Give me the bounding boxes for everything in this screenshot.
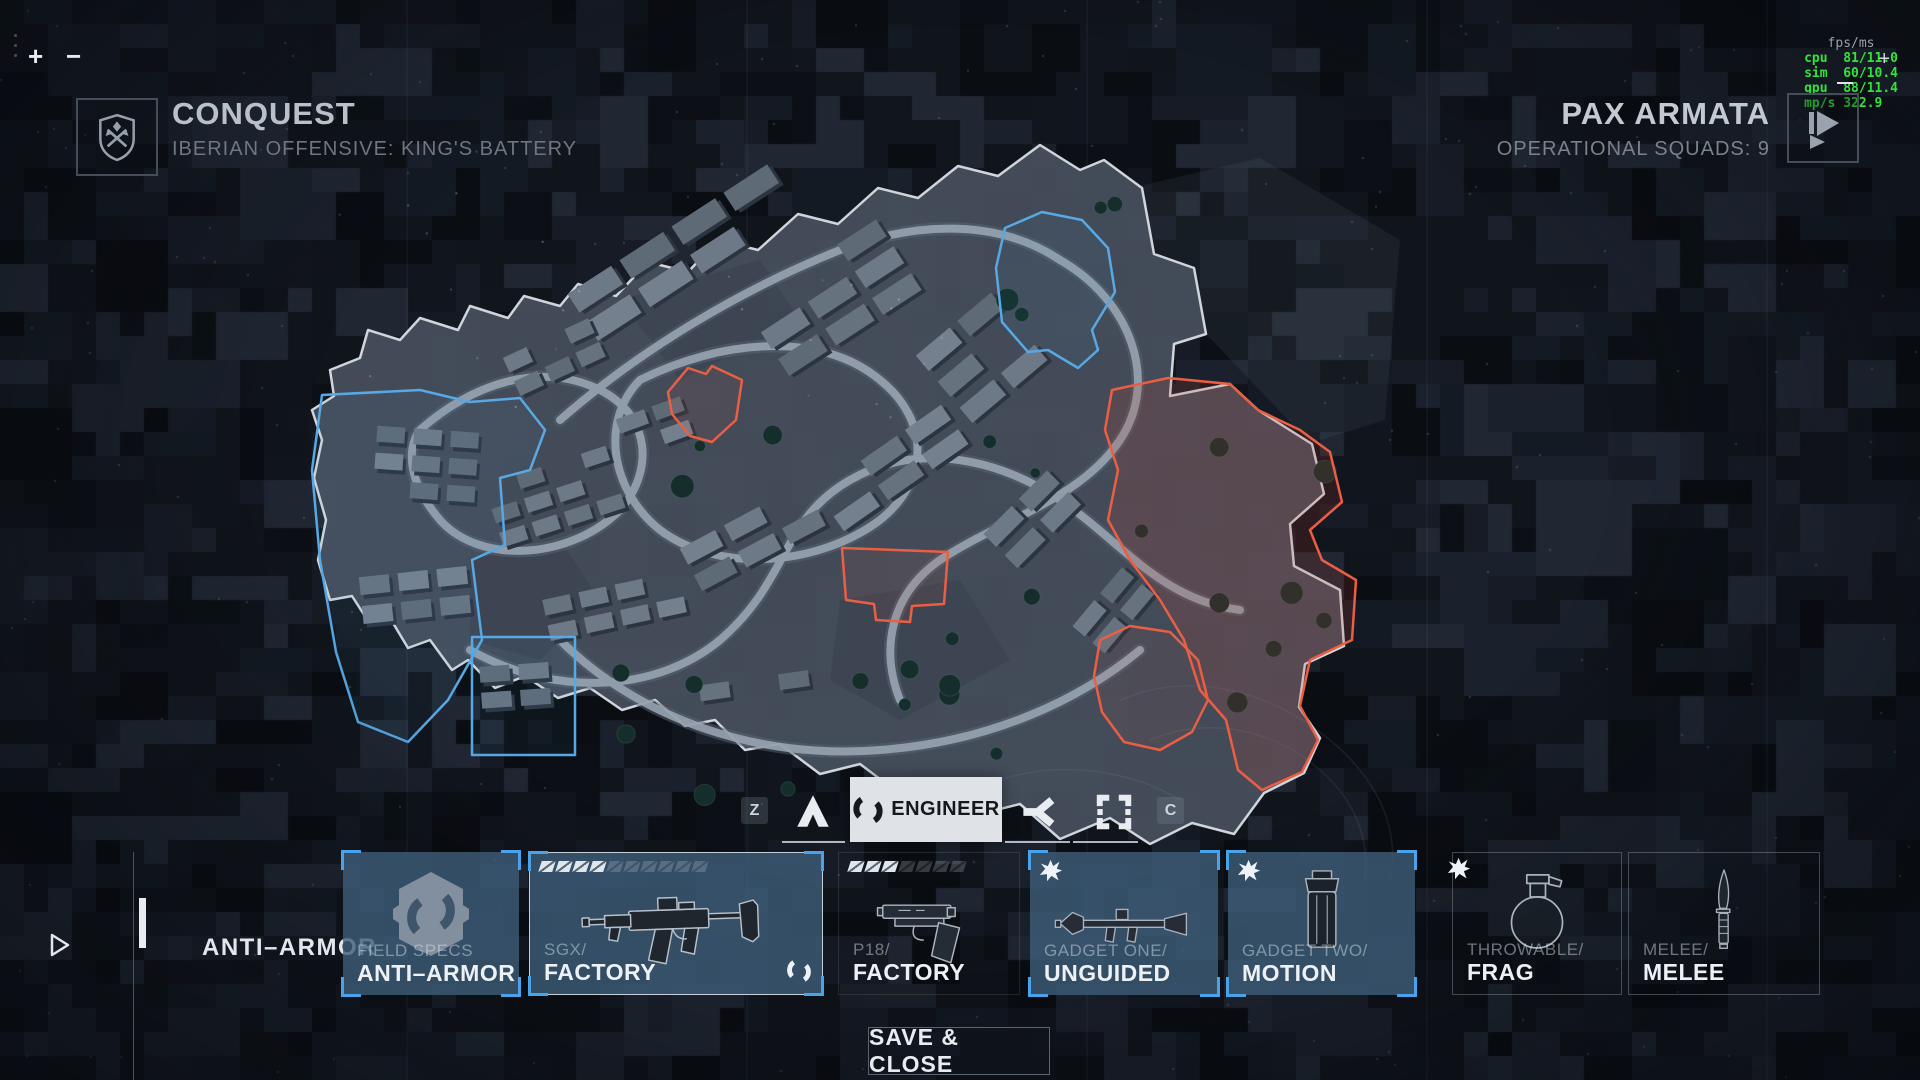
ammo-pip (691, 861, 709, 872)
explosive-badge-icon (1447, 857, 1471, 881)
card-name: UNGUIDED (1044, 960, 1171, 987)
card-name: MELEE (1643, 959, 1725, 986)
map-zoom-in-button[interactable]: + (28, 46, 43, 66)
corner-bracket (1397, 977, 1417, 997)
support-icon (1020, 793, 1060, 831)
loadout-scroll-track (133, 852, 134, 1080)
card-field-specs[interactable]: FIELD SPECS ANTI–ARMOR (343, 852, 519, 995)
ammo-pip (572, 861, 590, 872)
ammo-pip (606, 861, 624, 872)
card-category: MELEE/ (1643, 940, 1708, 960)
corner-bracket (1397, 850, 1417, 870)
ammo-pip (847, 861, 865, 872)
pax-armata-icon (1801, 106, 1845, 150)
card-category: SGX/ (544, 940, 587, 960)
next-class-keyhint: C (1157, 797, 1184, 824)
ammo-pip (915, 861, 933, 872)
class-assault-button[interactable] (794, 793, 832, 834)
deploy-screen: + − fps/ms cpu 81/11.0 sim 60/10.4 gpu 8… (0, 0, 1920, 1080)
card-category: GADGET ONE/ (1044, 941, 1167, 961)
corner-bracket (1200, 977, 1220, 997)
edge-dot (14, 54, 17, 57)
faction-icon-box (1787, 93, 1859, 163)
ammo-pip (538, 861, 556, 872)
corner-bracket (341, 850, 361, 870)
ammo-pip (898, 861, 916, 872)
engineer-label: ENGINEER (891, 798, 999, 821)
fps-underline (1837, 82, 1853, 84)
corner-bracket (501, 850, 521, 870)
ammo-pip (674, 861, 692, 872)
card-category: P18/ (853, 940, 890, 960)
faction-name: PAX ARMATA (1497, 96, 1770, 132)
save-close-button[interactable]: SAVE & CLOSE (868, 1027, 1050, 1075)
card-throwable[interactable]: THROWABLE/ FRAG (1452, 852, 1622, 995)
card-name: MOTION (1242, 960, 1337, 987)
ammo-pip (864, 861, 882, 872)
mission-subtitle: IBERIAN OFFENSIVE: KING'S BATTERY (172, 138, 577, 161)
classbar-underline (782, 841, 845, 843)
ammo-pip (932, 861, 950, 872)
ammo-pip (623, 861, 641, 872)
ammo-pip (640, 861, 658, 872)
card-name: FACTORY (544, 959, 656, 986)
conquest-shield-icon (94, 112, 140, 162)
ammo-pip (657, 861, 675, 872)
edge-dot (14, 44, 17, 47)
match-header: CONQUEST IBERIAN OFFENSIVE: KING'S BATTE… (172, 96, 577, 161)
loadout-scroll-thumb[interactable] (139, 898, 146, 948)
class-recon-button[interactable] (1094, 793, 1134, 836)
card-primary-weapon[interactable]: SGX/ FACTORY (529, 852, 823, 995)
map-zoom-out-button[interactable]: − (66, 46, 81, 66)
explosive-badge-icon (1039, 859, 1063, 883)
card-name: ANTI–ARMOR (357, 960, 515, 987)
engineer-icon (852, 794, 884, 826)
card-melee[interactable]: MELEE/ MELEE (1628, 852, 1820, 995)
engineer-icon (786, 958, 812, 984)
card-gadget-two[interactable]: GADGET TWO/ MOTION (1228, 852, 1415, 995)
card-gadget-one[interactable]: GADGET ONE/ UNGUIDED (1030, 852, 1218, 995)
assault-icon (794, 793, 832, 829)
crosshair-cursor-icon: + (1878, 48, 1890, 71)
card-name: FACTORY (853, 959, 965, 986)
classbar-underline (1073, 841, 1138, 843)
class-support-button[interactable] (1020, 793, 1060, 836)
card-name: FRAG (1467, 959, 1534, 986)
row-marker-icon (48, 932, 72, 958)
recon-icon (1094, 793, 1134, 831)
card-category: GADGET TWO/ (1242, 941, 1368, 961)
card-category: THROWABLE/ (1467, 940, 1584, 960)
classbar-underline (1005, 841, 1070, 843)
faction-header: PAX ARMATA OPERATIONAL SQUADS: 9 (1497, 96, 1770, 161)
ammo-pip (881, 861, 899, 872)
explosive-badge-icon (1237, 859, 1261, 883)
squads-count: OPERATIONAL SQUADS: 9 (1497, 138, 1770, 161)
gamemode-icon-box (76, 98, 158, 176)
ammo-pip (949, 861, 967, 872)
card-sidearm[interactable]: P18/ FACTORY (838, 852, 1020, 995)
corner-bracket (1200, 850, 1220, 870)
ammo-pips (849, 861, 965, 872)
prev-class-keyhint: Z (741, 797, 768, 824)
zone-blue-southwest (472, 637, 575, 755)
ammo-pip (589, 861, 607, 872)
ammo-pips (540, 861, 707, 872)
class-engineer-button-selected[interactable]: ENGINEER (850, 777, 1002, 842)
ammo-pip (555, 861, 573, 872)
gamemode-title: CONQUEST (172, 96, 577, 132)
knife-icon (1707, 865, 1741, 965)
edge-dot (14, 34, 17, 37)
card-category: FIELD SPECS (357, 941, 473, 961)
corner-bracket (804, 851, 824, 871)
